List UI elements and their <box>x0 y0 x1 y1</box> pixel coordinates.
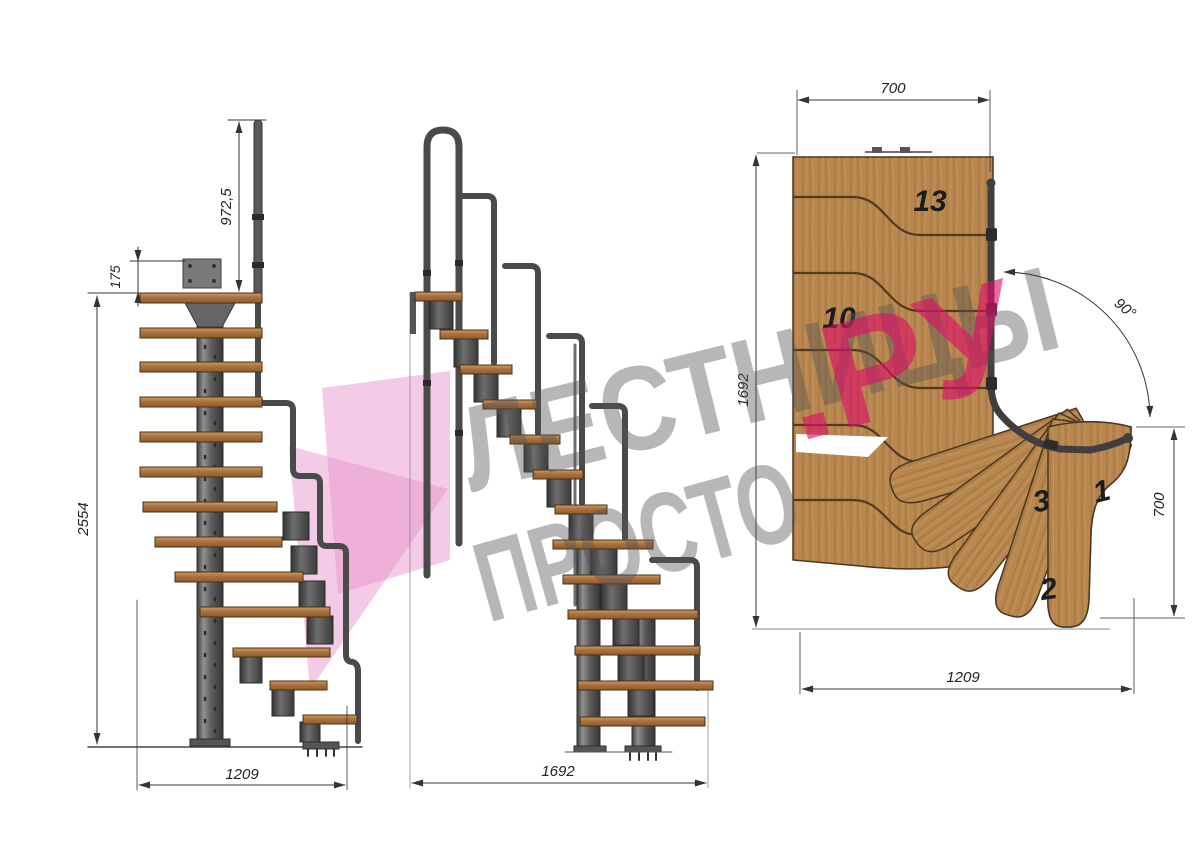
dim-turn-angle: 90° <box>1111 295 1139 323</box>
dim-total-height: 2554 <box>75 502 92 536</box>
dim-front-width: 1692 <box>541 763 575 780</box>
dim-plan-right-width: 700 <box>1151 492 1168 518</box>
handrail-post <box>254 120 262 296</box>
dim-plan-top-width: 700 <box>880 80 906 97</box>
staircase-drawing: 2554 175 972,5 1209 <box>0 0 1200 849</box>
mounting-plate <box>183 259 221 288</box>
column-bracket <box>185 303 235 327</box>
base-flange <box>625 746 661 752</box>
base-flange <box>303 742 339 749</box>
dim-top-step: 175 <box>107 265 123 289</box>
dim-rail-height: 972,5 <box>218 188 235 226</box>
step-label-13: 13 <box>913 185 947 218</box>
technical-drawing-canvas: 2554 175 972,5 1209 <box>0 0 1200 849</box>
base-flange <box>190 739 230 746</box>
dim-plan-bottom-length: 1209 <box>946 669 980 686</box>
base-flange <box>574 746 606 752</box>
dim-side-width: 1209 <box>225 766 259 783</box>
